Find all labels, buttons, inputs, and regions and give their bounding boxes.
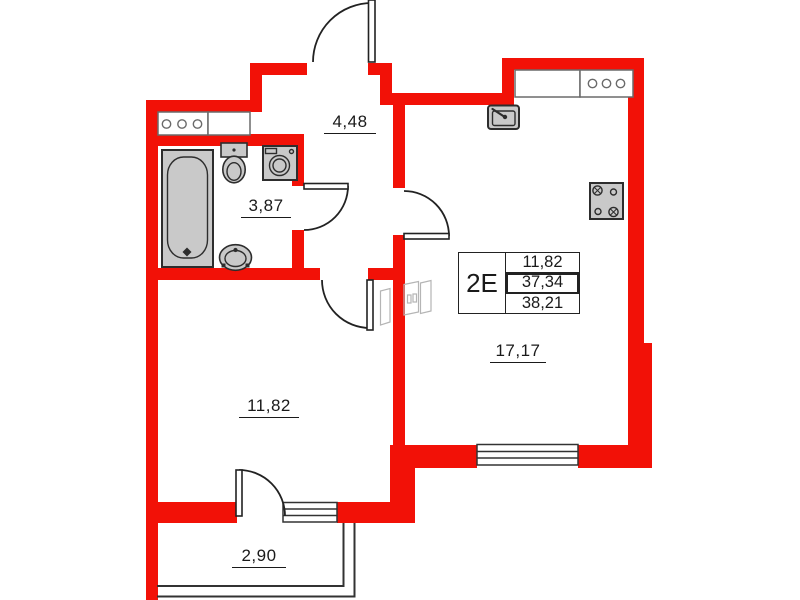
kitchen-door bbox=[404, 191, 449, 239]
wall-segment bbox=[146, 100, 158, 600]
wall-segment bbox=[337, 502, 415, 523]
bedroom-area-label: 11,82 bbox=[239, 397, 299, 418]
unit-total-area-value: 38,21 bbox=[506, 294, 579, 313]
wall-segment bbox=[502, 58, 644, 70]
wall-segment bbox=[380, 63, 392, 96]
washing-machine-icon bbox=[263, 146, 297, 180]
unit-area-value: 37,34 bbox=[506, 273, 579, 293]
door-leaf bbox=[369, 0, 376, 62]
door-arc bbox=[313, 3, 372, 62]
bedroom-door bbox=[322, 280, 373, 330]
wall-segment bbox=[146, 502, 237, 523]
window-symbol bbox=[283, 503, 337, 523]
stove-icon bbox=[590, 183, 623, 219]
entry-door bbox=[313, 0, 375, 62]
bathroom-area-label: 3,87 bbox=[241, 197, 291, 218]
wall-segment bbox=[578, 445, 652, 468]
wall-segment bbox=[250, 63, 307, 75]
balcony-door bbox=[236, 470, 285, 516]
wardrobe-sketch-icon bbox=[381, 281, 432, 326]
door-arc bbox=[322, 280, 370, 328]
window-symbol bbox=[477, 445, 578, 466]
door-arc bbox=[304, 186, 348, 230]
door-arc bbox=[239, 470, 285, 516]
toilet-icon bbox=[221, 143, 247, 183]
balcony-area-label: 2,90 bbox=[232, 547, 286, 568]
vent-grille-icon bbox=[515, 70, 633, 97]
floor-plan: 4,48 3,87 11,82 17,17 2,90 2Е 11,82 37,3… bbox=[0, 0, 800, 600]
wall-segment bbox=[393, 235, 405, 445]
bathroom-door bbox=[304, 184, 348, 231]
bathtub-icon bbox=[162, 150, 213, 267]
vent-grille-icon bbox=[158, 112, 250, 135]
wall-segment bbox=[628, 58, 644, 348]
living-kitchen-area-label: 17,17 bbox=[490, 342, 546, 363]
unit-type-label: 2Е bbox=[459, 253, 506, 313]
door-leaf bbox=[304, 184, 348, 190]
door-leaf bbox=[404, 234, 449, 240]
door-arc bbox=[404, 191, 449, 236]
door-leaf bbox=[367, 280, 373, 330]
hallway-area-label: 4,48 bbox=[324, 113, 376, 134]
unit-living-area-value: 11,82 bbox=[506, 253, 579, 273]
unit-areas: 11,82 37,34 38,21 bbox=[506, 253, 579, 313]
bath-sink-icon bbox=[220, 245, 252, 271]
wall-segment bbox=[146, 100, 258, 112]
door-leaf bbox=[236, 470, 242, 516]
wall-segment bbox=[393, 93, 405, 188]
kitchen-sink-icon bbox=[488, 106, 519, 130]
floor-plan-drawing bbox=[0, 0, 800, 600]
walls bbox=[146, 58, 652, 600]
unit-info-table: 2Е 11,82 37,34 38,21 bbox=[458, 252, 580, 314]
wall-segment bbox=[390, 445, 477, 468]
